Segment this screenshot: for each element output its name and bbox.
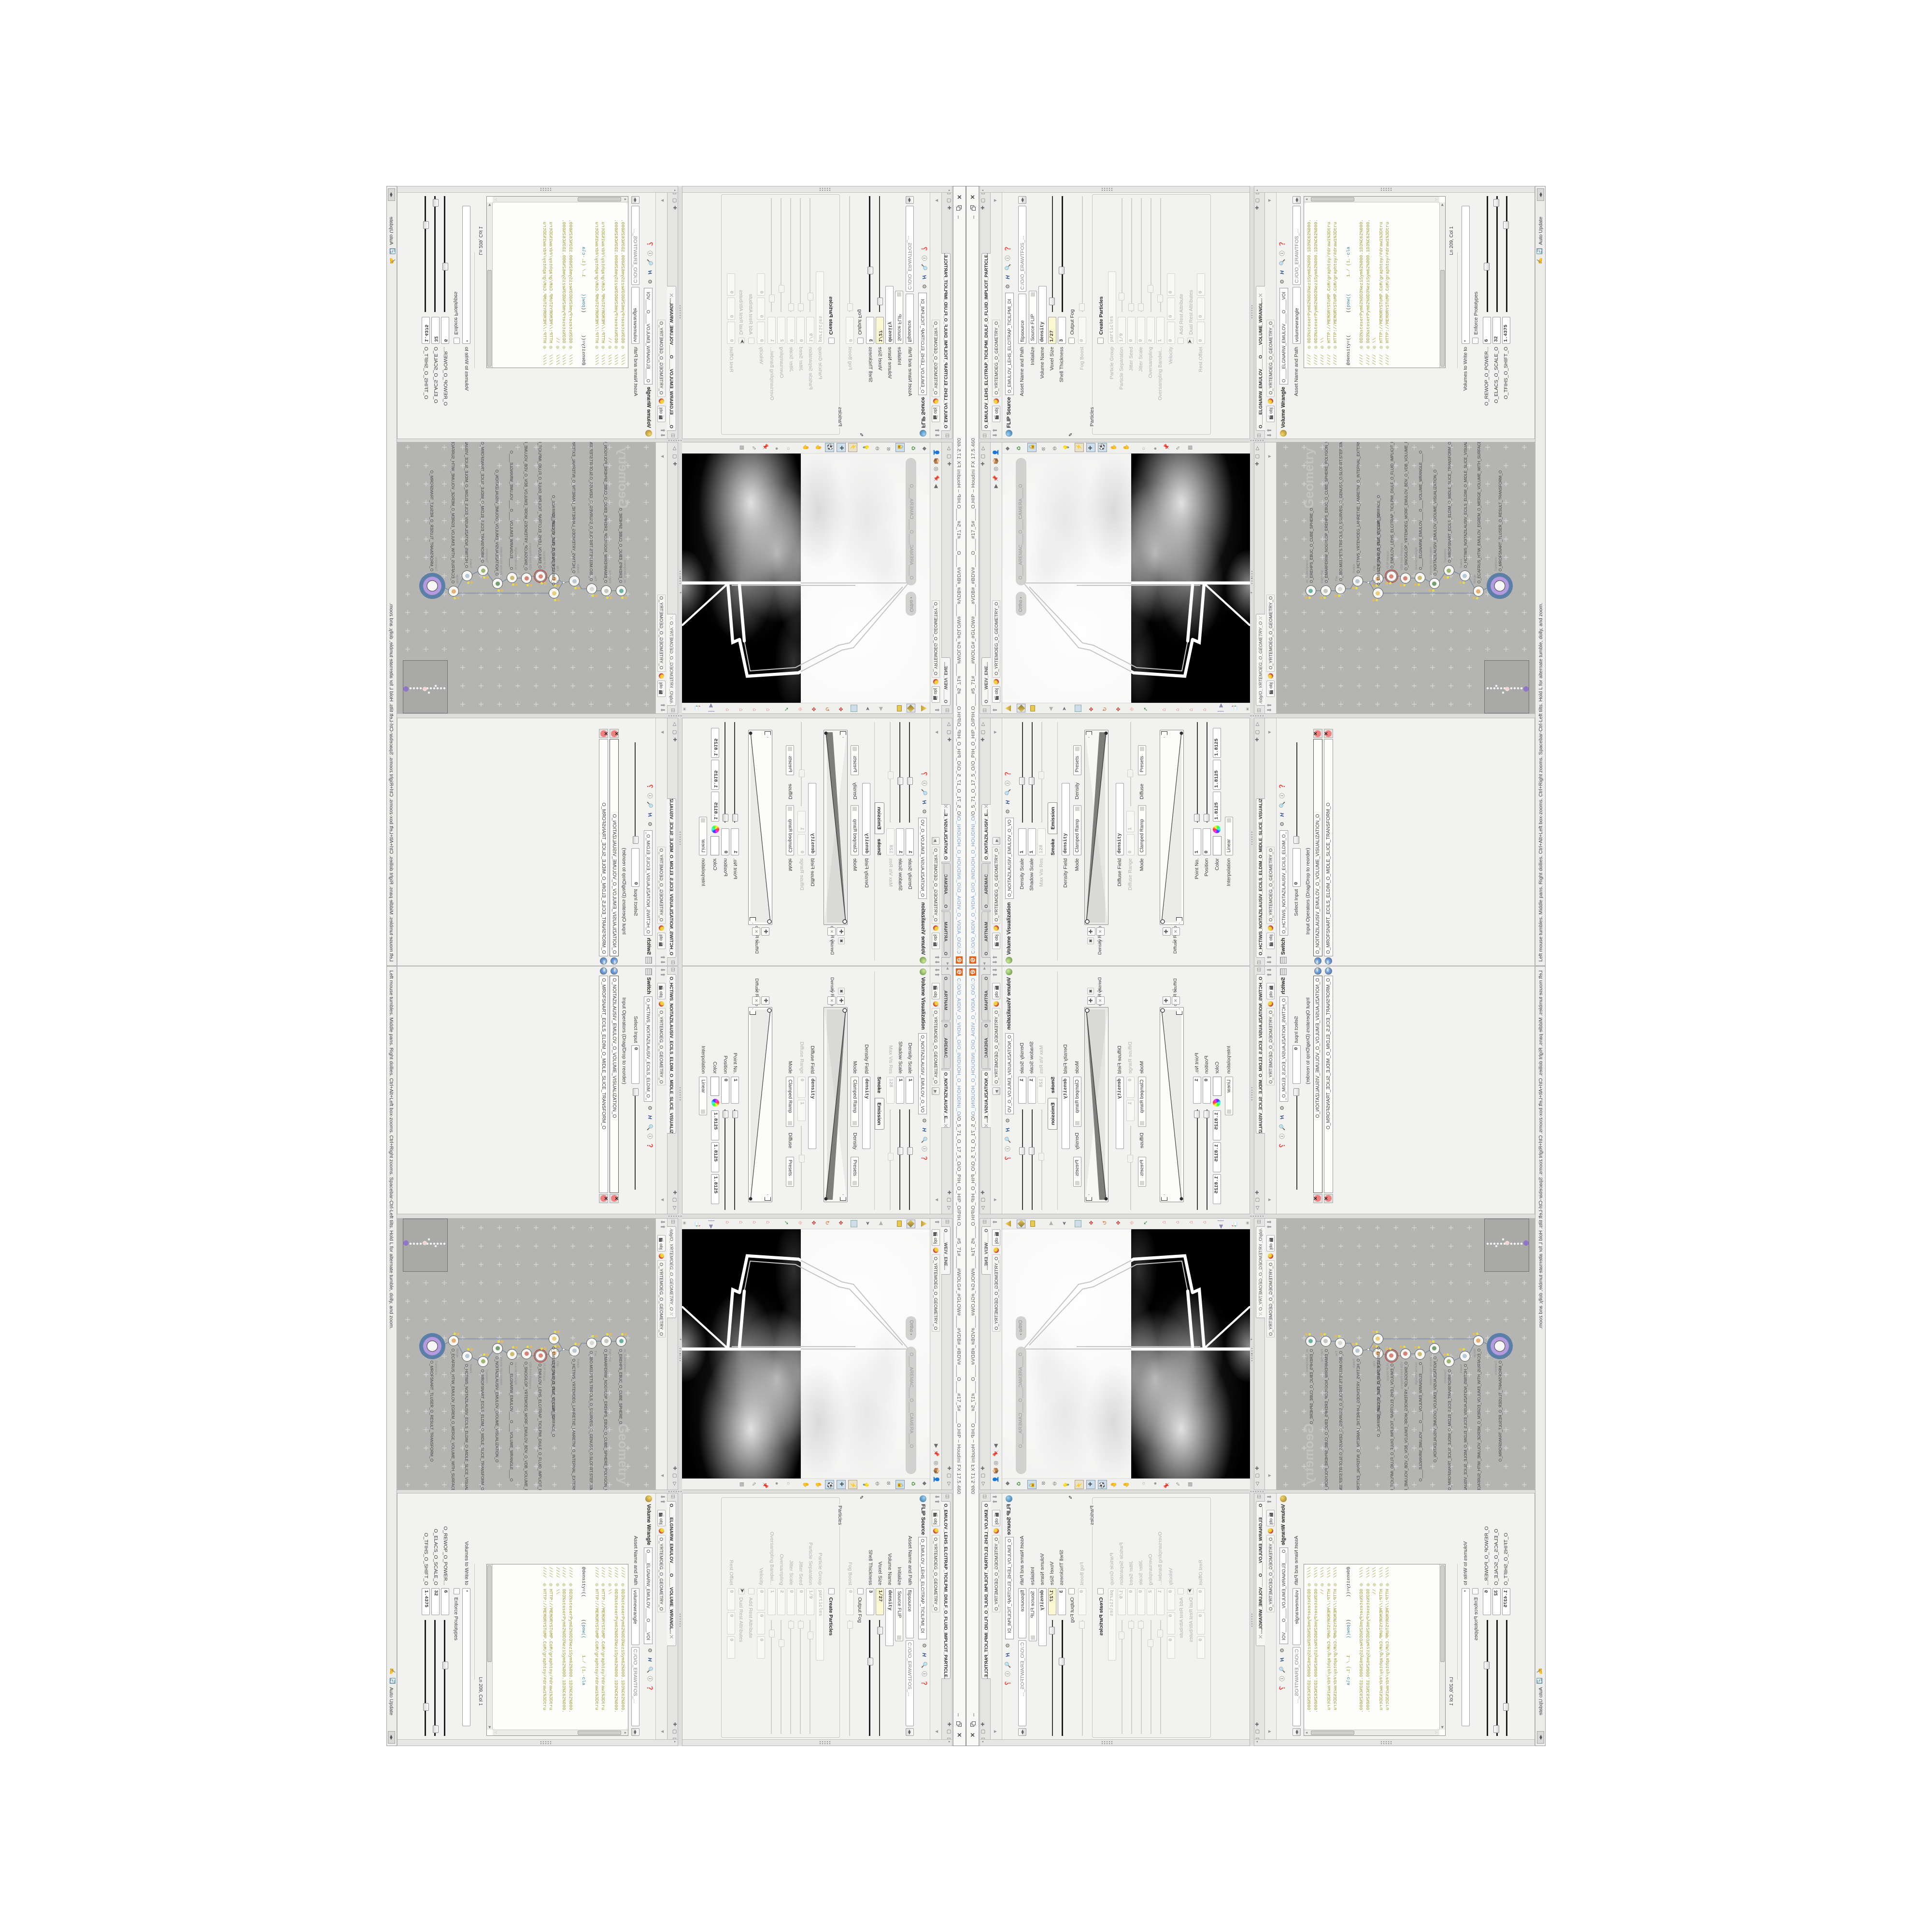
svg-text:Geometry: Geometry [616,448,630,509]
svg-text:Geometry: Geometry [616,1423,630,1484]
svg-text:Geometry: Geometry [1302,448,1316,509]
svg-text:Geometry: Geometry [1302,1423,1316,1484]
